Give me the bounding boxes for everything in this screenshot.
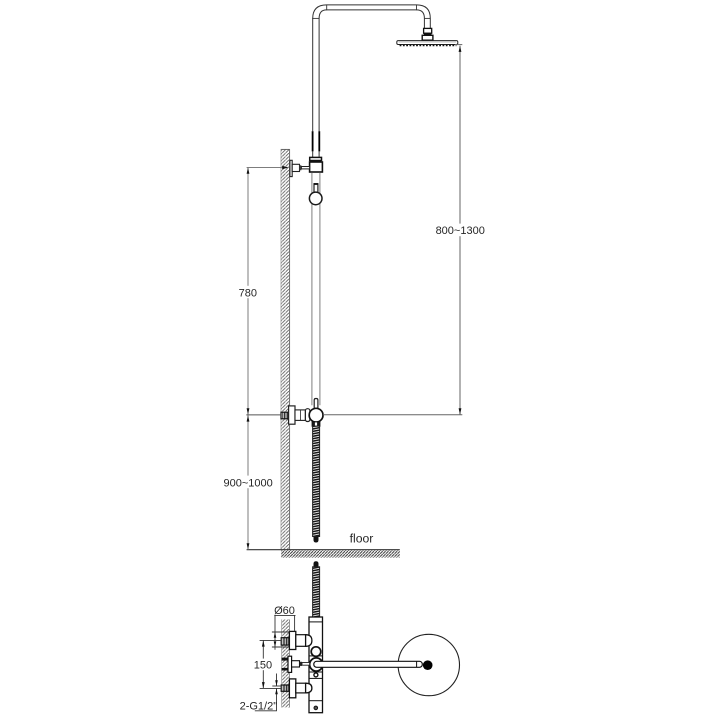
svg-text:floor: floor bbox=[350, 531, 374, 545]
svg-text:150: 150 bbox=[254, 659, 272, 671]
svg-text:2-G1/2": 2-G1/2" bbox=[240, 700, 278, 712]
svg-text:900~1000: 900~1000 bbox=[223, 477, 272, 489]
svg-text:800~1300: 800~1300 bbox=[436, 225, 485, 237]
svg-text:780: 780 bbox=[239, 288, 257, 300]
